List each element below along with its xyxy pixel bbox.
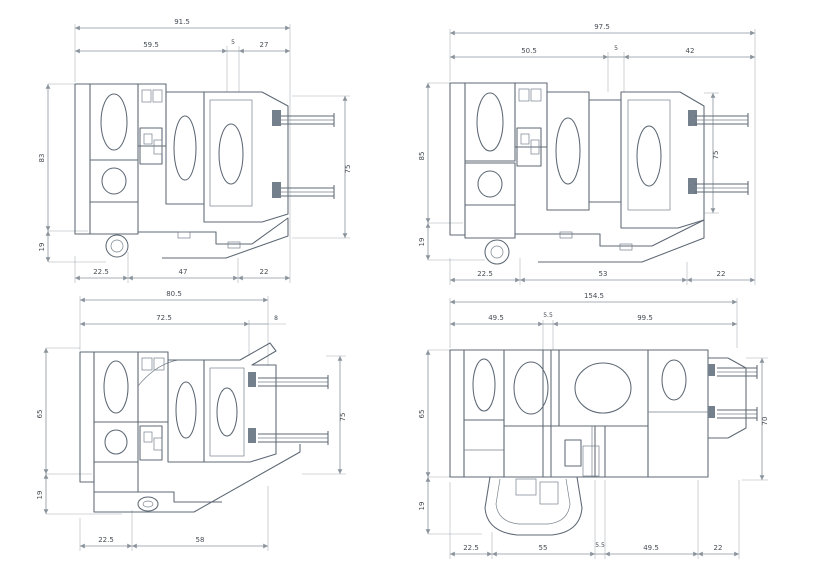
glass-unit-lower — [695, 181, 748, 195]
dim-label-total-width: 97.5 — [594, 23, 610, 31]
dim-label-top-seg2: 5 — [614, 45, 618, 52]
glass-unit-upper — [695, 113, 748, 127]
thermal-break — [543, 350, 551, 477]
dim-label-bot-seg2: 58 — [196, 536, 205, 544]
glass-unit-upper — [258, 375, 328, 389]
profile-art-top-left — [75, 84, 334, 258]
drain-tube-circle — [485, 240, 509, 264]
glazing-gasket — [708, 364, 715, 376]
glass-unit-lower — [258, 431, 328, 445]
dim-label-bot-seg2: 55 — [539, 544, 548, 552]
glazing-gasket — [708, 406, 715, 418]
profile-section-top-left: 91.5 59.5 5 27 22.5 47 22 83 19 — [28, 6, 368, 292]
sill-profile — [515, 220, 704, 262]
glass-unit-upper — [281, 113, 334, 127]
dim-label-top-seg2: 5.5 — [543, 312, 553, 319]
dim-label-left-lower: 19 — [38, 243, 46, 252]
dim-label-left-main: 83 — [38, 154, 46, 163]
glass-unit-lower — [281, 185, 334, 199]
dim-label-top-seg1: 59.5 — [143, 41, 159, 49]
dim-label-left-main: 85 — [418, 152, 426, 161]
dim-label-top-seg2: 5 — [231, 39, 235, 46]
profile-art-bottom-right — [450, 350, 757, 535]
dim-label-bot-seg3: 5.5 — [595, 542, 605, 549]
dim-label-top-seg3: 27 — [260, 41, 269, 49]
dim-label-top-seg3: 99.5 — [637, 314, 653, 322]
sill-profile — [138, 218, 288, 258]
dim-label-total-width: 91.5 — [174, 18, 190, 26]
hatch-strip — [450, 83, 465, 235]
dim-label-bot-seg1: 22.5 — [93, 268, 109, 276]
dim-label-left-main: 65 — [36, 410, 44, 419]
sash-outline — [204, 343, 276, 462]
dim-label-total-width: 80.5 — [166, 290, 182, 298]
thermal-break — [595, 426, 605, 477]
arc-detail — [138, 360, 178, 386]
dim-label-top-seg1: 50.5 — [521, 47, 537, 55]
dim-label-bot-seg3: 22 — [260, 268, 269, 276]
dim-label-right-height: 75 — [712, 151, 720, 160]
interlock-detail — [565, 440, 581, 466]
drain-basin — [485, 477, 582, 535]
dim-label-bot-seg5: 22 — [714, 544, 723, 552]
dim-label-left-main: 65 — [418, 410, 426, 419]
dim-label-bot-seg4: 49.5 — [643, 544, 659, 552]
profile-section-bottom-right: 154.5 49.5 5.5 99.5 22.5 55 5.5 49.5 22 — [412, 282, 802, 574]
gasket-oval — [138, 497, 158, 511]
glass-unit-lower — [717, 407, 757, 421]
drawing-sheet: 91.5 59.5 5 27 22.5 47 22 83 19 — [0, 0, 824, 576]
dim-label-right-height: 75 — [344, 165, 352, 174]
dim-label-bot-seg1: 22.5 — [477, 270, 493, 278]
chamber-oval — [101, 94, 127, 150]
dimensions-top-left: 91.5 59.5 5 27 22.5 47 22 83 19 — [38, 18, 352, 283]
profile-section-bottom-left: 80.5 72.5 8 22.5 58 65 19 75 — [26, 286, 366, 572]
glazing-gasket — [272, 110, 281, 126]
dim-label-bot-seg2: 53 — [599, 270, 608, 278]
dim-label-left-lower: 19 — [418, 502, 426, 511]
profile-art-top-right — [450, 83, 748, 264]
hatch-strip — [80, 352, 94, 482]
chamber-oval — [473, 359, 495, 411]
profile-section-top-right: 97.5 50.5 5 42 22.5 53 22 85 19 — [410, 10, 795, 302]
drain-tube-circle — [106, 235, 128, 257]
hatch-strip — [75, 84, 90, 234]
dim-label-top-seg1: 72.5 — [156, 314, 172, 322]
dim-label-bot-seg1: 22.5 — [463, 544, 479, 552]
dim-label-left-lower: 19 — [36, 491, 44, 500]
profile-art-bottom-left — [80, 343, 328, 512]
dim-label-top-seg2: 8 — [274, 315, 278, 322]
dim-label-top-seg3: 42 — [686, 47, 695, 55]
glazing-gasket — [248, 428, 256, 443]
dim-label-total-width: 154.5 — [584, 292, 604, 300]
glazing-gasket — [248, 372, 256, 387]
chamber-oval — [104, 361, 128, 413]
dim-label-bot-seg2: 47 — [179, 268, 188, 276]
dim-label-right-height: 75 — [339, 413, 347, 422]
dim-label-top-seg1: 49.5 — [488, 314, 504, 322]
hatch-strip — [450, 350, 464, 477]
dim-label-bot-seg1: 22.5 — [98, 536, 114, 544]
dim-label-right-height: 70 — [761, 417, 769, 426]
dim-label-bot-seg3: 22 — [717, 270, 726, 278]
dim-label-left-lower: 19 — [418, 238, 426, 247]
glazing-gasket — [272, 182, 281, 198]
sill-profile — [94, 492, 222, 502]
chamber-oval — [477, 93, 503, 151]
glass-unit-upper — [717, 365, 757, 379]
